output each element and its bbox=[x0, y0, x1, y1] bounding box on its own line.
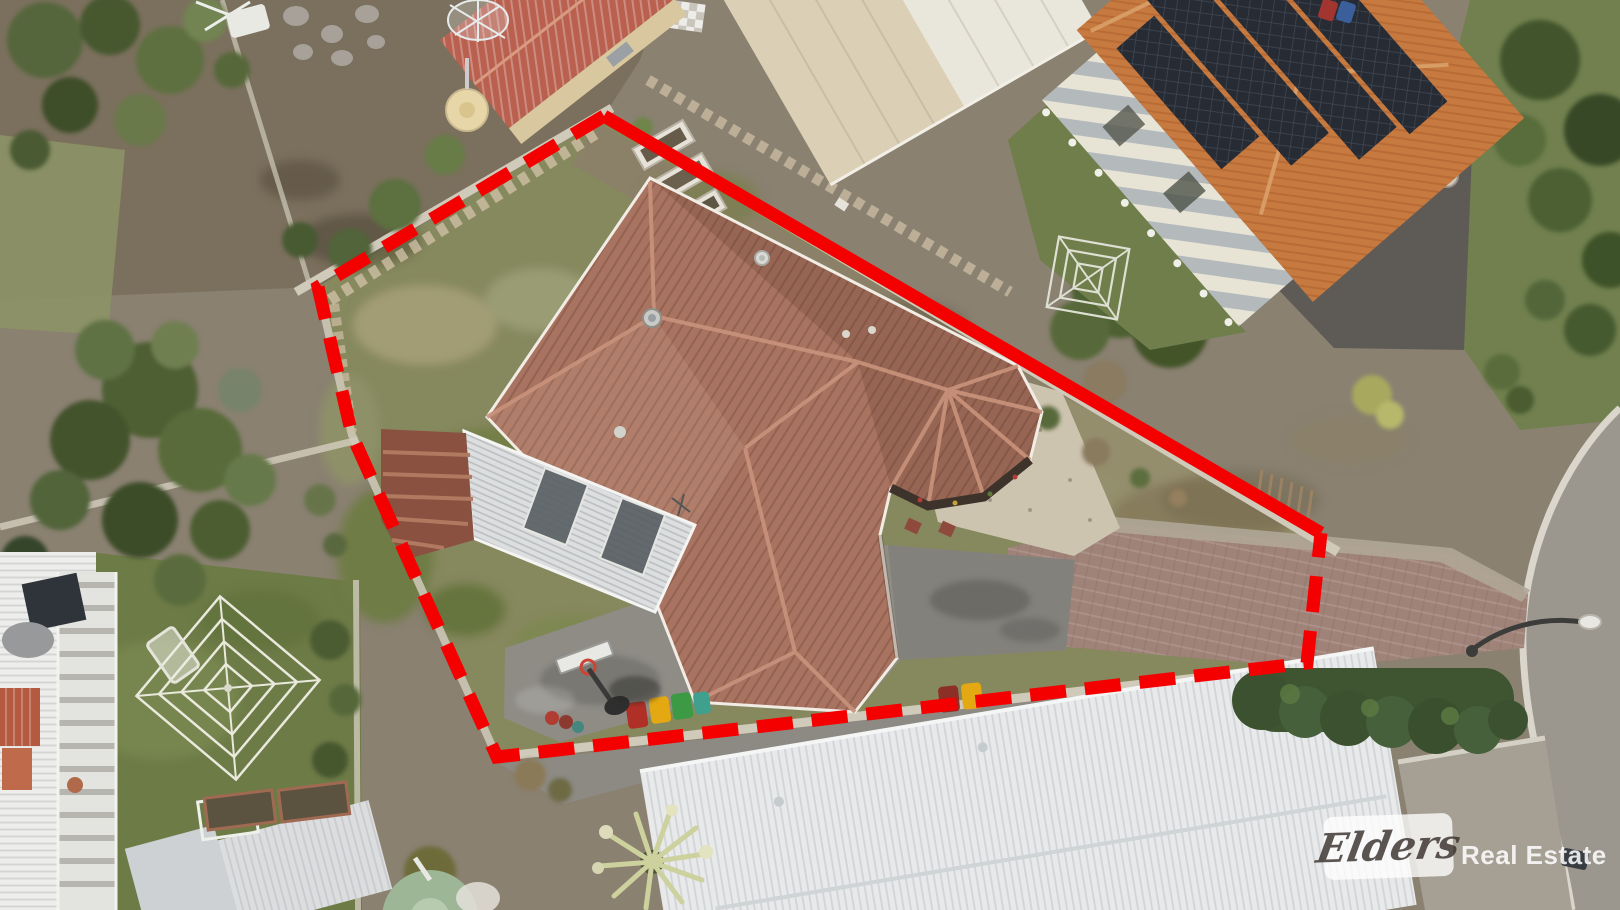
garden-bed bbox=[204, 790, 275, 830]
roof-dot bbox=[868, 326, 876, 334]
aerial-scene bbox=[0, 0, 1620, 910]
water-tank-lid bbox=[459, 102, 475, 118]
roof-dot bbox=[842, 330, 850, 338]
hoop-shadow bbox=[609, 676, 661, 704]
light-lamp bbox=[1579, 615, 1601, 629]
aerial-photo: Elders Real Estate bbox=[0, 0, 1620, 910]
agency-logo-badge: Elders bbox=[1323, 813, 1454, 880]
tarp bbox=[2, 622, 54, 658]
whirlybird-center bbox=[759, 255, 765, 261]
red-corrugated-sheet bbox=[2, 748, 32, 790]
terracotta-pot bbox=[67, 777, 83, 793]
teal-bin bbox=[693, 691, 712, 715]
garden-bed bbox=[278, 782, 349, 822]
green-bin bbox=[670, 692, 693, 721]
chimney-cap bbox=[648, 314, 656, 322]
roof-vent bbox=[614, 426, 626, 438]
agency-logo: Elders bbox=[1314, 824, 1464, 869]
agency-logo-suffix: Real Estate bbox=[1461, 840, 1607, 871]
